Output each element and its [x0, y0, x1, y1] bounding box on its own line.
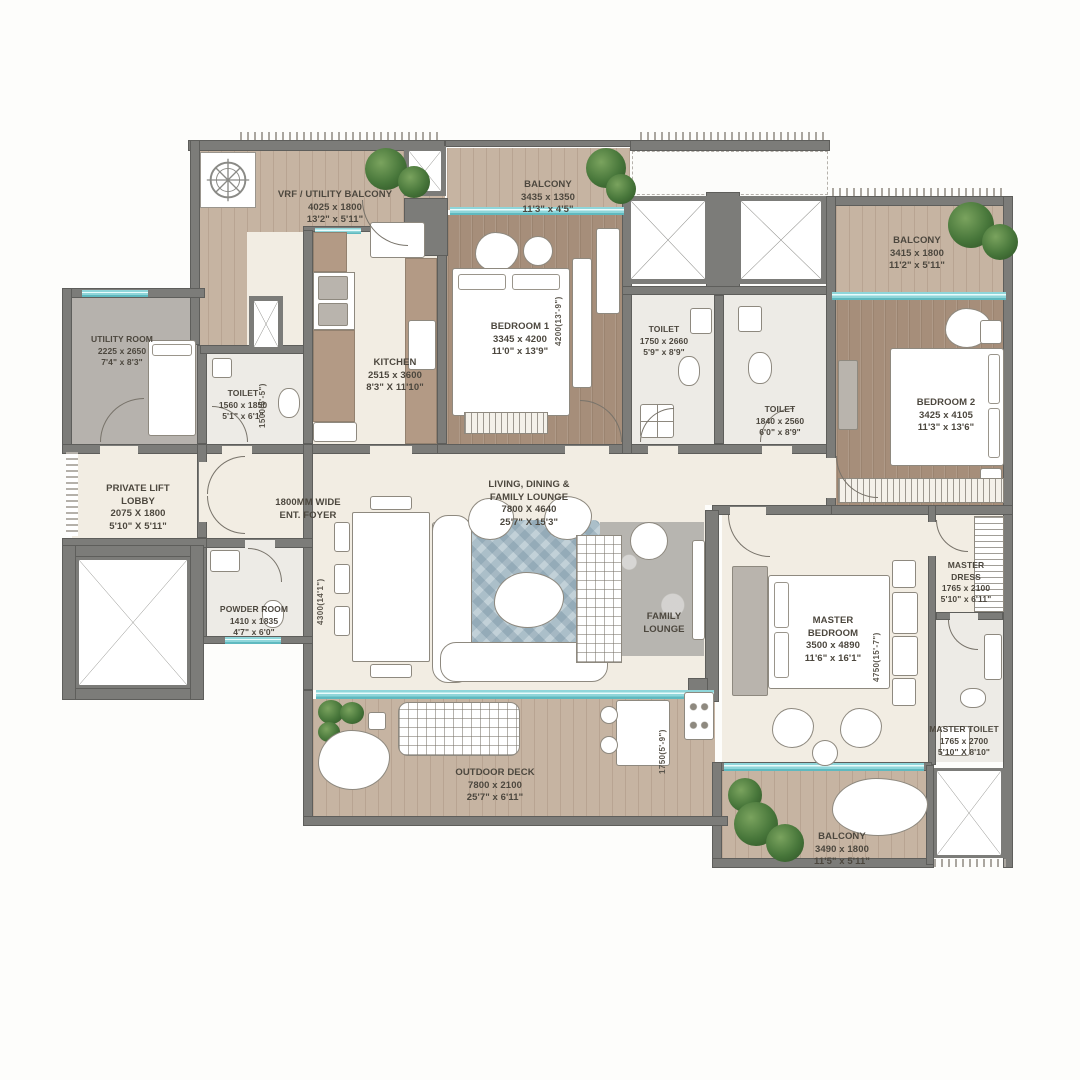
dresser: [838, 360, 858, 430]
nightstand: [892, 678, 916, 706]
wardrobe: [572, 258, 592, 388]
plant-icon: [606, 174, 636, 204]
sink: [318, 303, 348, 326]
wall-duct: [706, 192, 740, 288]
wall-outer-left: [62, 288, 72, 448]
round-table: [812, 740, 838, 766]
pillow: [458, 274, 506, 290]
side-table: [368, 712, 386, 730]
vanity: [984, 634, 1002, 680]
label-toilet-2: TOILET1840 x 25606'0" x 8'9": [742, 382, 818, 461]
chair: [600, 736, 618, 754]
washbasin: [210, 550, 240, 572]
hatch-edge: [640, 132, 826, 140]
door-gap: [730, 507, 766, 515]
label-toilet-3: TOILET1560 x 18505'1" x 6'1": [206, 366, 280, 445]
hatch-edge: [832, 188, 1004, 196]
dim-living-depth: 4300(14'1"): [316, 525, 325, 625]
wall: [826, 505, 1013, 515]
dim-deck-right: 1750(5'-9"): [658, 714, 667, 774]
chair: [370, 496, 412, 510]
hallway-floor: [632, 454, 826, 505]
compass-icon: [200, 152, 256, 208]
chair: [334, 564, 350, 594]
dim-bedroom1: 4200(13'-9"): [554, 280, 563, 346]
hatch-stairs: [934, 859, 1006, 867]
wall: [303, 690, 313, 826]
cabinet: [313, 422, 357, 442]
floor-plan-page: { "plan_title": "Apartment Floor Plan", …: [0, 0, 1080, 1080]
door-gap: [826, 458, 836, 498]
label-powder: POWDER ROOM1410 x 18354'7" x 6'0": [206, 582, 302, 661]
label-vrf-balcony: VRF / UTILITY BALCONY4025 x 180013'2" x …: [262, 164, 408, 252]
label-lobby: PRIVATE LIFT LOBBY2075 X 18005'10" X 5'1…: [82, 458, 194, 558]
wall: [712, 762, 722, 868]
dim-toilet3: 1500(5'-5"): [258, 366, 267, 428]
label-kitchen: KITCHEN2515 x 36008'3" X 11'10": [352, 332, 438, 420]
nightstand: [980, 320, 1002, 344]
wall: [705, 510, 719, 702]
door-gap: [222, 446, 252, 454]
dim-master: 4750(15'-7"): [872, 596, 881, 682]
label-family-lounge: FAMILY LOUNGE: [626, 586, 702, 661]
lift-icon: [76, 557, 190, 688]
shaft-icon: [249, 296, 283, 352]
counter: [313, 330, 355, 422]
plant-icon: [340, 702, 364, 724]
chair: [600, 706, 618, 724]
wall: [630, 140, 830, 151]
label-balcony-bottom: BALCONY3490 x 180011'5" x 5'11": [794, 806, 890, 894]
wall: [303, 230, 313, 444]
door-gap: [100, 446, 138, 454]
shaft-icon: [626, 196, 710, 284]
wall: [190, 140, 200, 345]
shaft-icon: [934, 768, 1004, 858]
label-bedroom-2: BEDROOM 23425 x 410511'3" x 13'6": [894, 372, 998, 460]
label-toilet-1: TOILET1750 x 26605'9" x 8'9": [632, 302, 696, 381]
headboard-panel: [732, 566, 768, 696]
wall: [714, 295, 724, 444]
wall: [445, 140, 632, 147]
lift-door-hatch: [66, 452, 78, 536]
wall-lift: [62, 688, 204, 700]
wall: [830, 196, 1012, 206]
door-gap: [370, 446, 412, 454]
window-living-deck: [316, 690, 714, 699]
bench: [464, 412, 548, 434]
sink: [318, 276, 348, 300]
wall: [622, 286, 830, 295]
shaft-icon: [736, 196, 826, 284]
label-balcony-top: BALCONY3435 x 135011'3" x 4'5": [492, 154, 604, 242]
floor-plan: VRF / UTILITY BALCONY4025 x 180013'2" x …: [0, 0, 1080, 1080]
label-balcony-right: BALCONY3415 x 180011'2" x 5'11": [864, 210, 970, 298]
wall-lift: [62, 545, 76, 700]
door-gap: [565, 446, 609, 454]
wc: [748, 352, 772, 384]
open-duct-zone: [632, 151, 828, 195]
wc: [278, 388, 300, 418]
cabinet: [892, 592, 918, 634]
label-utility: UTILITY ROOM2225 x 26507'4" x 8'3": [74, 312, 170, 391]
chair: [334, 606, 350, 636]
door-gap: [648, 446, 678, 454]
label-living: LIVING, DINING & FAMILY LOUNGE7800 X 464…: [458, 454, 600, 554]
hatch-edge: [240, 132, 440, 140]
label-outdoor-deck: OUTDOOR DECK7800 x 210025'7" x 6'11": [438, 742, 552, 830]
door-gap: [199, 462, 207, 522]
window: [82, 290, 148, 297]
pillow: [512, 274, 560, 290]
label-master-dress: MASTER DRESS1765 x 21005'10" x 6'11": [928, 538, 1004, 628]
label-master-toilet: MASTER TOILET1765 x 27005'10" X 8'10": [920, 702, 1008, 781]
washbasin: [738, 306, 762, 332]
bench: [370, 664, 412, 678]
round-table: [630, 522, 668, 560]
cabinet: [892, 636, 918, 676]
plant-icon: [982, 224, 1018, 260]
label-foyer: 1800MM WIDE ENT. FOYER: [248, 472, 368, 547]
grill-counter: [684, 692, 714, 740]
wall-lift: [190, 545, 204, 700]
nightstand: [892, 560, 916, 588]
